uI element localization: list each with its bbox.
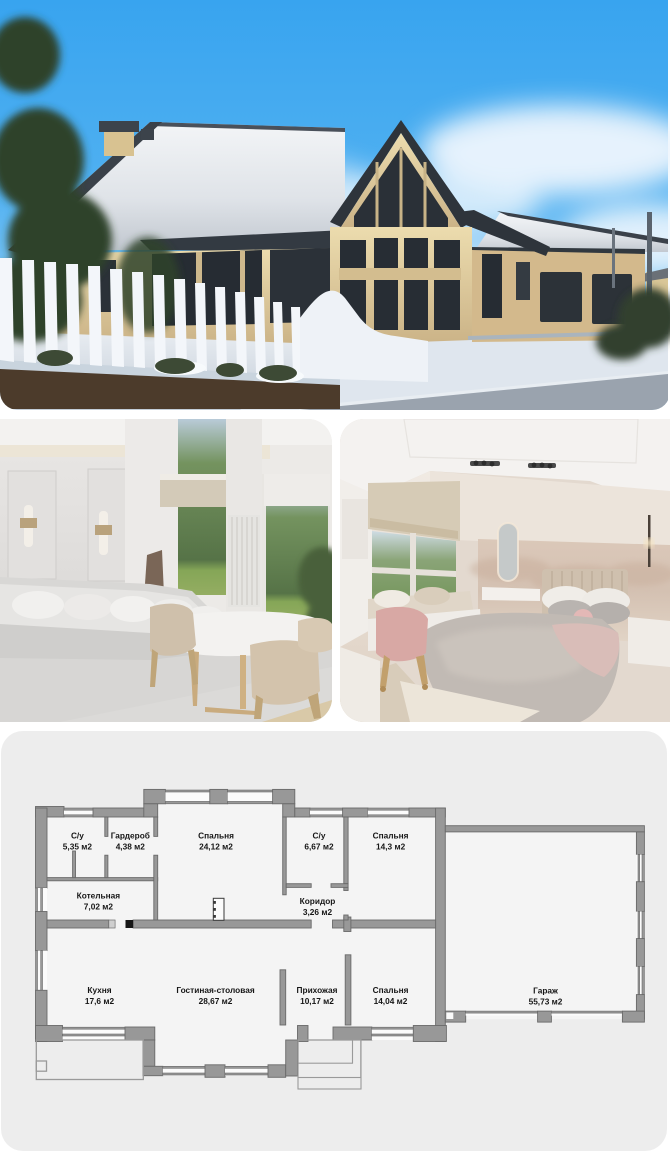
svg-text:17,6 м2: 17,6 м2 (85, 996, 115, 1006)
svg-text:Спальня: Спальня (373, 831, 409, 841)
svg-text:24,12 м2: 24,12 м2 (199, 842, 233, 852)
svg-text:6,67 м2: 6,67 м2 (304, 842, 334, 852)
svg-text:55,73 м2: 55,73 м2 (529, 997, 563, 1007)
svg-text:10,17 м2: 10,17 м2 (300, 996, 334, 1006)
svg-text:Коридор: Коридор (300, 896, 336, 906)
svg-text:Котельная: Котельная (77, 891, 121, 901)
svg-text:14,04 м2: 14,04 м2 (374, 996, 408, 1006)
svg-text:С/у: С/у (313, 831, 326, 841)
svg-text:7,02 м2: 7,02 м2 (84, 902, 114, 912)
svg-text:28,67 м2: 28,67 м2 (199, 996, 233, 1006)
svg-text:Кухня: Кухня (87, 985, 111, 995)
svg-text:Спальня: Спальня (373, 985, 409, 995)
svg-text:5,35 м2: 5,35 м2 (63, 842, 93, 852)
svg-text:3,26 м2: 3,26 м2 (303, 907, 333, 917)
svg-text:Гардероб: Гардероб (111, 831, 150, 841)
svg-text:Спальня: Спальня (198, 831, 234, 841)
svg-text:4,38 м2: 4,38 м2 (116, 842, 146, 852)
svg-text:Гараж: Гараж (533, 986, 558, 996)
svg-text:Гостиная-столовая: Гостиная-столовая (176, 985, 255, 995)
svg-text:С/у: С/у (71, 831, 84, 841)
svg-text:14,3 м2: 14,3 м2 (376, 842, 406, 852)
svg-text:Прихожая: Прихожая (297, 985, 338, 995)
